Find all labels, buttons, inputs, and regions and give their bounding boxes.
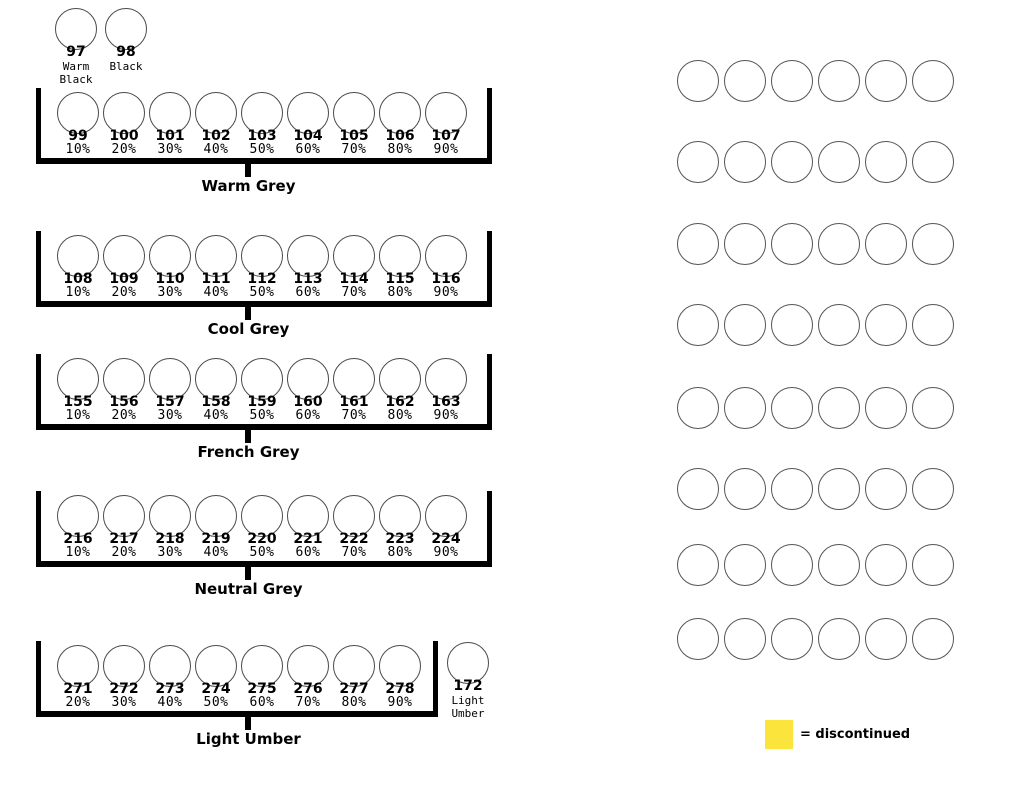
swatch-162: 16280% bbox=[379, 358, 421, 422]
swatch-percent: 20% bbox=[103, 287, 145, 299]
blank-swatch-circle bbox=[818, 141, 860, 183]
discontinued-label: = discontinued bbox=[800, 727, 910, 742]
blank-swatch-circle bbox=[724, 387, 766, 429]
blank-swatch-circle bbox=[677, 387, 719, 429]
swatch-percent: 90% bbox=[379, 697, 421, 709]
swatch-163: 16390% bbox=[425, 358, 467, 422]
swatch-percent: 50% bbox=[241, 547, 283, 559]
swatch-216: 21610% bbox=[57, 495, 99, 559]
swatch-percent: 10% bbox=[57, 410, 99, 422]
swatch-222: 22270% bbox=[333, 495, 375, 559]
swatch-percent: 70% bbox=[287, 697, 329, 709]
swatch-percent: 60% bbox=[287, 287, 329, 299]
swatch-percent: 50% bbox=[241, 410, 283, 422]
blank-swatch-circle bbox=[865, 223, 907, 265]
swatch-percent: 30% bbox=[149, 287, 191, 299]
blank-swatch-circle bbox=[677, 304, 719, 346]
blank-swatch-circle bbox=[677, 223, 719, 265]
swatch-percent: 40% bbox=[195, 287, 237, 299]
blank-swatch-circle bbox=[677, 141, 719, 183]
blank-swatch-circle bbox=[912, 304, 954, 346]
swatch-103: 10350% bbox=[241, 92, 283, 156]
blank-swatch-circle bbox=[724, 141, 766, 183]
swatch-110: 11030% bbox=[149, 235, 191, 299]
blank-swatch-circle bbox=[912, 60, 954, 102]
swatch-97: 97WarmBlack bbox=[55, 8, 97, 86]
swatch-105: 10570% bbox=[333, 92, 375, 156]
swatch-109: 10920% bbox=[103, 235, 145, 299]
swatch-percent: 70% bbox=[333, 410, 375, 422]
blank-swatch-circle bbox=[677, 544, 719, 586]
swatch-102: 10240% bbox=[195, 92, 237, 156]
blank-swatch-circle bbox=[865, 618, 907, 660]
swatch-percent: 70% bbox=[333, 547, 375, 559]
swatch-278: 27890% bbox=[379, 645, 421, 709]
group-light-umber: Light Umber27120%27230%27340%27450%27560… bbox=[0, 645, 540, 757]
bracket-stem bbox=[245, 430, 251, 443]
swatch-percent: 60% bbox=[287, 410, 329, 422]
swatch-number: 172 bbox=[447, 679, 489, 694]
blank-swatch-circle bbox=[912, 544, 954, 586]
blank-swatch-circle bbox=[818, 304, 860, 346]
group-label-french-grey: French Grey bbox=[0, 444, 497, 460]
swatch-104: 10460% bbox=[287, 92, 329, 156]
blank-swatch-circle bbox=[677, 618, 719, 660]
swatch-percent: 10% bbox=[57, 144, 99, 156]
blank-swatch-circle bbox=[818, 223, 860, 265]
swatch-percent: 30% bbox=[149, 410, 191, 422]
swatch-percent: 10% bbox=[57, 287, 99, 299]
swatch-219: 21940% bbox=[195, 495, 237, 559]
blank-swatch-circle bbox=[724, 304, 766, 346]
swatch-273: 27340% bbox=[149, 645, 191, 709]
swatch-name-line: Black bbox=[105, 60, 147, 73]
bracket-stem bbox=[245, 717, 251, 730]
swatch-218: 21830% bbox=[149, 495, 191, 559]
blank-grid-row bbox=[677, 544, 954, 586]
swatch-276: 27670% bbox=[287, 645, 329, 709]
swatch-160: 16060% bbox=[287, 358, 329, 422]
blank-swatch-circle bbox=[865, 304, 907, 346]
swatch-percent: 30% bbox=[149, 144, 191, 156]
swatch-percent: 10% bbox=[57, 547, 99, 559]
swatch-159: 15950% bbox=[241, 358, 283, 422]
swatch-percent: 40% bbox=[195, 547, 237, 559]
blank-swatch-circle bbox=[818, 387, 860, 429]
swatch-percent: 70% bbox=[333, 144, 375, 156]
swatch-row-warm-grey: 9910%10020%10130%10240%10350%10460%10570… bbox=[57, 92, 467, 156]
blank-swatch-circle bbox=[677, 60, 719, 102]
swatch-percent: 80% bbox=[379, 410, 421, 422]
swatch-percent: 20% bbox=[57, 697, 99, 709]
blank-swatch-circle bbox=[912, 387, 954, 429]
swatch-113: 11360% bbox=[287, 235, 329, 299]
blank-swatch-circle bbox=[865, 387, 907, 429]
swatch-name-line: Light bbox=[447, 694, 489, 707]
blank-grid-row bbox=[677, 618, 954, 660]
swatch-116: 11690% bbox=[425, 235, 467, 299]
group-label-warm-grey: Warm Grey bbox=[0, 178, 497, 194]
swatch-275: 27560% bbox=[241, 645, 283, 709]
group-label-light-umber: Light Umber bbox=[0, 731, 497, 747]
swatch-161: 16170% bbox=[333, 358, 375, 422]
swatch-221: 22160% bbox=[287, 495, 329, 559]
blank-grid-row bbox=[677, 387, 954, 429]
swatch-percent: 40% bbox=[149, 697, 191, 709]
swatch-217: 21720% bbox=[103, 495, 145, 559]
swatch-271: 27120% bbox=[57, 645, 99, 709]
swatch-percent: 80% bbox=[379, 287, 421, 299]
swatch-percent: 60% bbox=[287, 547, 329, 559]
group-label-neutral-grey: Neutral Grey bbox=[0, 581, 497, 597]
swatch-101: 10130% bbox=[149, 92, 191, 156]
blank-grid-row bbox=[677, 141, 954, 183]
swatch-row-french-grey: 15510%15620%15730%15840%15950%16060%1617… bbox=[57, 358, 467, 422]
swatch-107: 10790% bbox=[425, 92, 467, 156]
blank-swatch-circle bbox=[677, 468, 719, 510]
swatch-name-line: Umber bbox=[447, 707, 489, 720]
swatch-99: 9910% bbox=[57, 92, 99, 156]
swatch-percent: 60% bbox=[241, 697, 283, 709]
swatch-percent: 40% bbox=[195, 144, 237, 156]
blank-swatch-circle bbox=[912, 223, 954, 265]
blank-swatch-circle bbox=[724, 60, 766, 102]
swatch-percent: 40% bbox=[195, 410, 237, 422]
blank-swatch-circle bbox=[912, 618, 954, 660]
blank-swatch-circle bbox=[865, 544, 907, 586]
blank-grid-row bbox=[677, 304, 954, 346]
swatch-percent: 60% bbox=[287, 144, 329, 156]
group-warm-grey: Warm Grey9910%10020%10130%10240%10350%10… bbox=[0, 92, 540, 204]
blank-swatch-circle bbox=[818, 544, 860, 586]
swatch-percent: 20% bbox=[103, 410, 145, 422]
swatch-158: 15840% bbox=[195, 358, 237, 422]
blank-swatch-circle bbox=[771, 223, 813, 265]
swatch-155: 15510% bbox=[57, 358, 99, 422]
blank-swatch-circle bbox=[771, 387, 813, 429]
blank-swatch-circle bbox=[818, 618, 860, 660]
bracket-stem bbox=[245, 307, 251, 320]
blank-grid-row bbox=[677, 60, 954, 102]
blank-swatch-circle bbox=[771, 618, 813, 660]
grey-marker-swatch-chart: 97WarmBlack98Black Warm Grey9910%10020%1… bbox=[0, 0, 1024, 792]
swatch-number: 98 bbox=[105, 45, 147, 60]
swatch-220: 22050% bbox=[241, 495, 283, 559]
swatch-percent: 90% bbox=[425, 547, 467, 559]
swatch-108: 10810% bbox=[57, 235, 99, 299]
swatch-row-cool-grey: 10810%10920%11030%11140%11250%11360%1147… bbox=[57, 235, 467, 299]
swatch-114: 11470% bbox=[333, 235, 375, 299]
swatch-number: 97 bbox=[55, 45, 97, 60]
swatch-277: 27780% bbox=[333, 645, 375, 709]
blank-swatch-circle bbox=[771, 468, 813, 510]
blank-swatch-circle bbox=[865, 60, 907, 102]
swatch-percent: 90% bbox=[425, 144, 467, 156]
blank-swatch-circle bbox=[724, 618, 766, 660]
swatch-100: 10020% bbox=[103, 92, 145, 156]
swatch-percent: 50% bbox=[195, 697, 237, 709]
blank-swatch-circle bbox=[724, 544, 766, 586]
swatch-percent: 70% bbox=[333, 287, 375, 299]
swatch-percent: 50% bbox=[241, 144, 283, 156]
swatch-name-line: Black bbox=[55, 73, 97, 86]
swatch-percent: 90% bbox=[425, 287, 467, 299]
swatch-percent: 90% bbox=[425, 410, 467, 422]
swatch-percent: 80% bbox=[333, 697, 375, 709]
group-french-grey: French Grey15510%15620%15730%15840%15950… bbox=[0, 358, 540, 470]
group-neutral-grey: Neutral Grey21610%21720%21830%21940%2205… bbox=[0, 495, 540, 607]
swatch-percent: 80% bbox=[379, 144, 421, 156]
blank-swatch-circle bbox=[771, 544, 813, 586]
swatch-274: 27450% bbox=[195, 645, 237, 709]
swatch-112: 11250% bbox=[241, 235, 283, 299]
discontinued-color-swatch bbox=[765, 720, 793, 749]
swatch-157: 15730% bbox=[149, 358, 191, 422]
swatch-percent: 20% bbox=[103, 144, 145, 156]
swatch-115: 11580% bbox=[379, 235, 421, 299]
swatch-percent: 20% bbox=[103, 547, 145, 559]
bracket-stem bbox=[245, 164, 251, 177]
blank-swatch-circle bbox=[865, 141, 907, 183]
swatch-111: 11140% bbox=[195, 235, 237, 299]
swatch-224: 22490% bbox=[425, 495, 467, 559]
blank-swatch-circle bbox=[912, 141, 954, 183]
blank-grid-row bbox=[677, 468, 954, 510]
swatch-percent: 80% bbox=[379, 547, 421, 559]
blank-swatch-circle bbox=[771, 141, 813, 183]
group-label-cool-grey: Cool Grey bbox=[0, 321, 497, 337]
blank-swatch-circle bbox=[724, 468, 766, 510]
blank-swatch-circle bbox=[912, 468, 954, 510]
blank-swatch-circle bbox=[818, 468, 860, 510]
swatch-172: 172LightUmber bbox=[447, 642, 489, 720]
swatch-272: 27230% bbox=[103, 645, 145, 709]
swatch-percent: 30% bbox=[103, 697, 145, 709]
swatch-106: 10680% bbox=[379, 92, 421, 156]
blank-swatch-circle bbox=[771, 304, 813, 346]
bracket-stem bbox=[245, 567, 251, 580]
swatch-98: 98Black bbox=[105, 8, 147, 73]
swatch-name-line: Warm bbox=[55, 60, 97, 73]
swatch-223: 22380% bbox=[379, 495, 421, 559]
swatch-156: 15620% bbox=[103, 358, 145, 422]
swatch-percent: 30% bbox=[149, 547, 191, 559]
swatch-row-neutral-grey: 21610%21720%21830%21940%22050%22160%2227… bbox=[57, 495, 467, 559]
blank-swatch-circle bbox=[724, 223, 766, 265]
blank-swatch-circle bbox=[865, 468, 907, 510]
swatch-row-light-umber: 27120%27230%27340%27450%27560%27670%2778… bbox=[57, 645, 421, 709]
blank-swatch-circle bbox=[771, 60, 813, 102]
group-cool-grey: Cool Grey10810%10920%11030%11140%11250%1… bbox=[0, 235, 540, 347]
blank-swatch-circle bbox=[818, 60, 860, 102]
swatch-percent: 50% bbox=[241, 287, 283, 299]
blank-grid-row bbox=[677, 223, 954, 265]
